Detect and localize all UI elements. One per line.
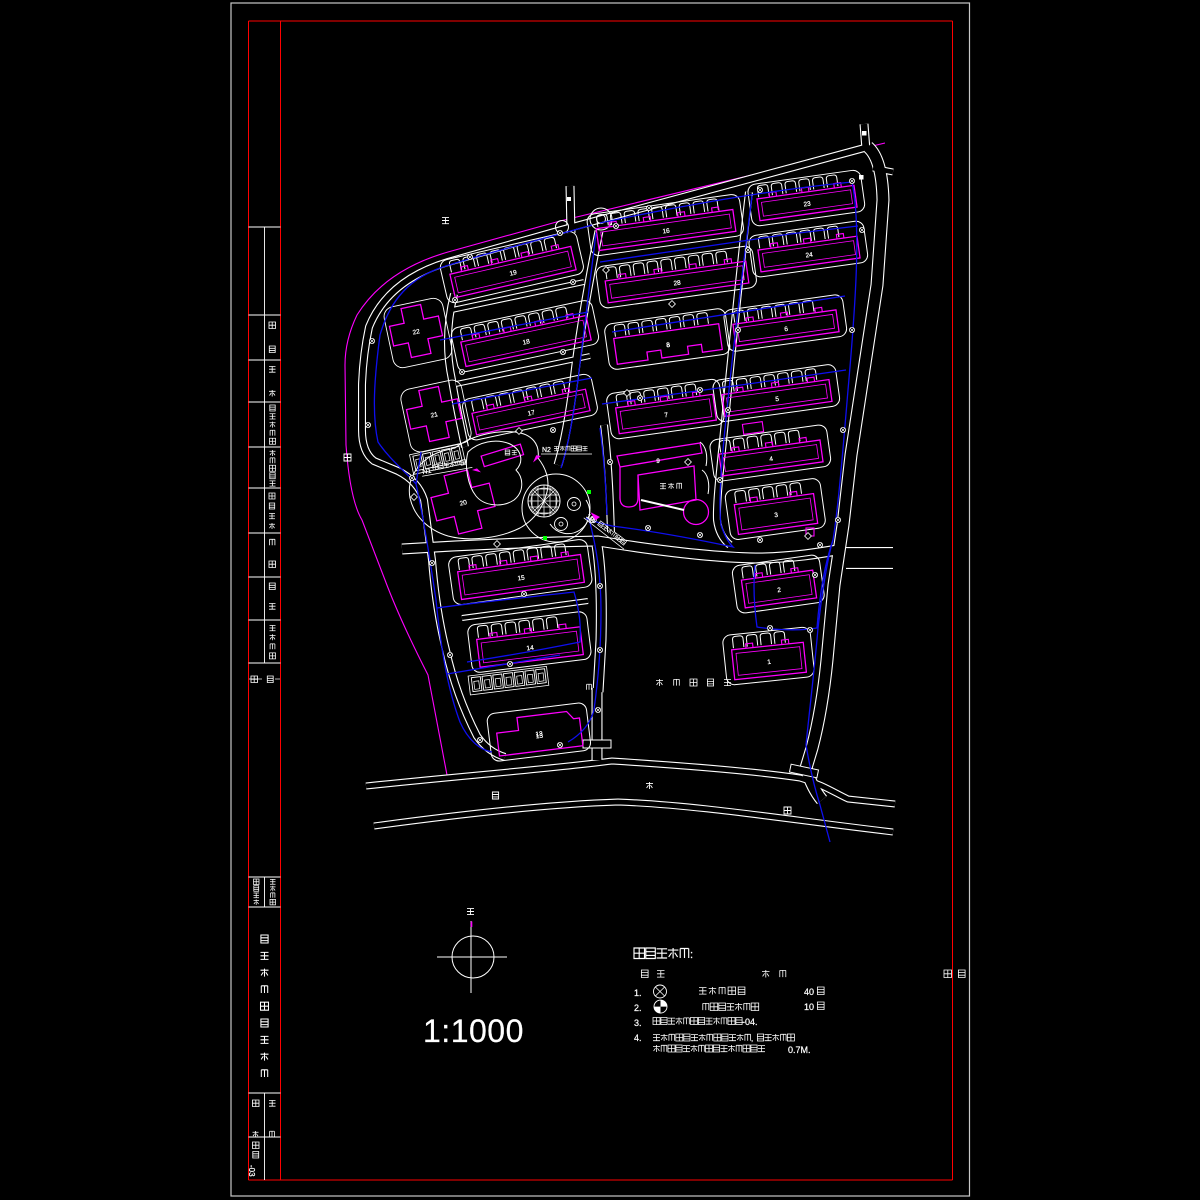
svg-text:0.7M.: 0.7M. (788, 1045, 811, 1055)
svg-text:N2: N2 (542, 447, 551, 454)
svg-text:1:1000: 1:1000 (423, 1013, 524, 1049)
svg-text::: : (690, 949, 693, 961)
svg-text:13: 13 (535, 731, 543, 739)
svg-text:4.: 4. (634, 1033, 642, 1043)
svg-text:2.: 2. (634, 1003, 642, 1013)
svg-text:-04.: -04. (742, 1017, 758, 1027)
svg-text:24: 24 (805, 251, 814, 259)
svg-text:28: 28 (673, 279, 682, 287)
svg-text:23: 23 (803, 200, 812, 208)
svg-text:16: 16 (662, 227, 671, 235)
svg-text:40: 40 (804, 987, 814, 997)
svg-text:-03: -03 (247, 1165, 256, 1177)
svg-text:9: 9 (656, 458, 660, 465)
svg-text:1.: 1. (634, 988, 642, 998)
svg-text:10: 10 (804, 1002, 814, 1012)
svg-text:15: 15 (517, 574, 526, 582)
svg-text:3.: 3. (634, 1018, 642, 1028)
svg-text:,: , (751, 1034, 753, 1043)
